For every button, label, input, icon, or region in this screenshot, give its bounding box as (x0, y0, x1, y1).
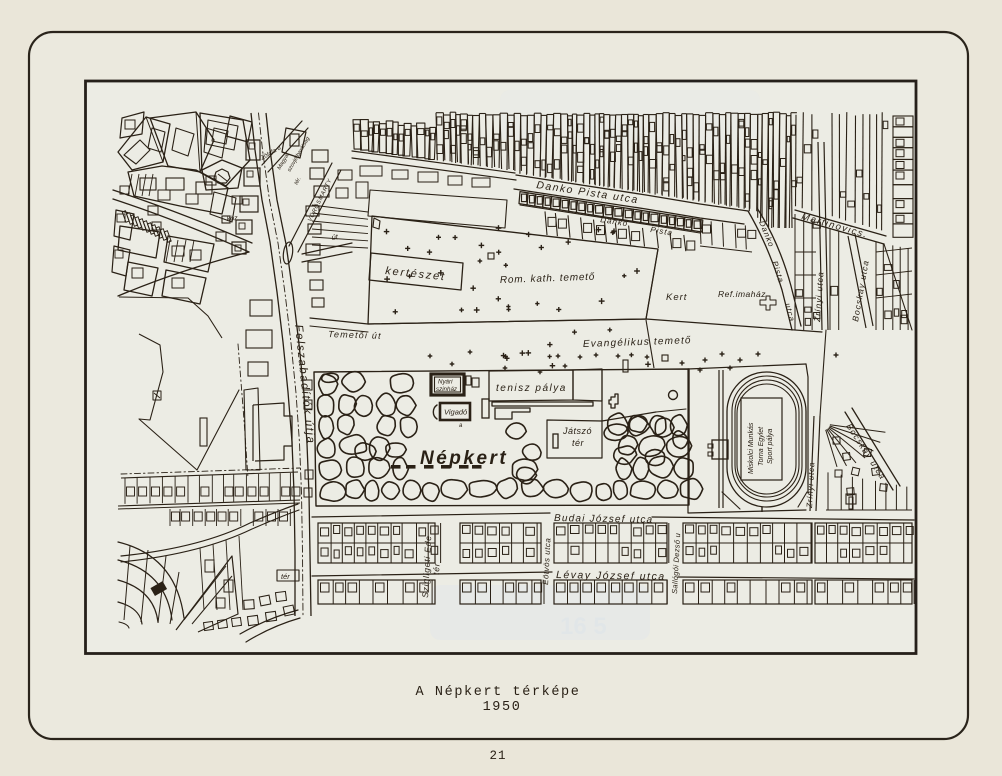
svg-text:tér: tér (431, 562, 442, 575)
svg-text:Ref.imaház: Ref.imaház (718, 289, 766, 299)
svg-text:Nyári: Nyári (438, 379, 453, 386)
svg-text:Miskolci Munkás: Miskolci Munkás (748, 422, 755, 474)
svg-text:Vigadó: Vigadó (444, 408, 467, 417)
svg-text:Budai József utca: Budai József utca (554, 513, 654, 526)
svg-text:köz: köz (226, 215, 238, 223)
svg-text:tenisz pálya: tenisz pálya (496, 383, 567, 394)
svg-text:1950: 1950 (483, 700, 522, 715)
svg-text:16 5: 16 5 (560, 613, 607, 640)
svg-text:Kert: Kert (666, 292, 687, 303)
svg-text:Torna Egylet: Torna Egylet (758, 426, 765, 466)
svg-text:tér: tér (281, 572, 290, 581)
svg-text:szinház: szinház (436, 386, 458, 393)
svg-text:Sport pálya: Sport pálya (767, 428, 774, 464)
svg-text:21: 21 (489, 749, 506, 763)
svg-text:Temetői út: Temetői út (328, 329, 382, 341)
svg-text:Lévay József utca: Lévay József utca (556, 569, 666, 583)
svg-text:A Népkert térképe: A Népkert térképe (416, 685, 581, 700)
svg-text:tér: tér (572, 438, 585, 448)
svg-text:Játszó: Játszó (562, 426, 592, 436)
